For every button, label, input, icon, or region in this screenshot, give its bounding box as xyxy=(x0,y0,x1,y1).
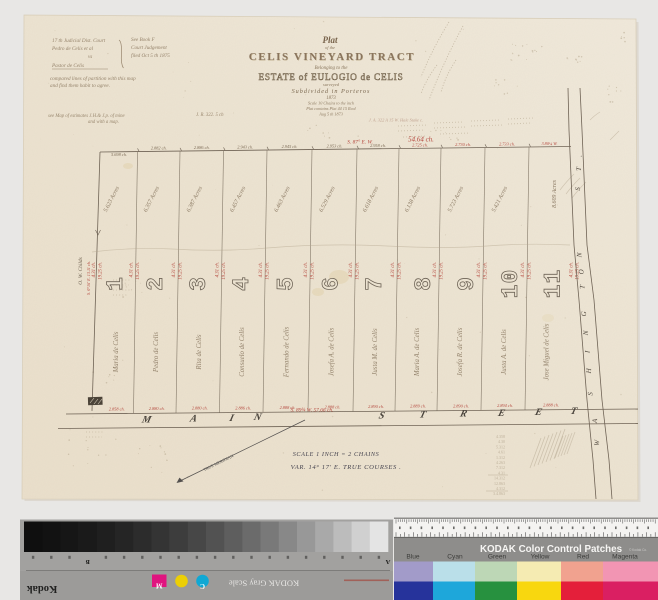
svg-text:4.31 ch.: 4.31 ch. xyxy=(172,262,177,277)
svg-text:J. R. 322. 5 ch: J. R. 322. 5 ch xyxy=(196,113,224,118)
svg-text:Cyan: Cyan xyxy=(447,554,463,561)
svg-text:19.25 ch.: 19.25 ch. xyxy=(222,262,227,280)
svg-text:VAR. 14° 17' E. TRUE COURSE: VAR. 14° 17' E. TRUE COURSES . xyxy=(291,464,402,471)
svg-text:J. A. 322 A 15 W. Hale Stake: J. A. 322 A 15 W. Hale Stake c. xyxy=(369,118,423,123)
svg-text:17 th Judicial Dist. Court: 17 th Judicial Dist. Court xyxy=(52,38,106,44)
svg-text:19.25 ch.: 19.25 ch. xyxy=(397,262,402,280)
svg-text:2: 2 xyxy=(143,276,169,291)
svg-text:Justa M. de Celis: Justa M. de Celis xyxy=(372,328,379,376)
svg-text:A: A xyxy=(385,558,390,565)
svg-text:Scale 10 Chains to the inch: Scale 10 Chains to the inch xyxy=(308,101,354,106)
svg-text:Blue: Blue xyxy=(406,554,420,561)
svg-text:Maria A. de Celis: Maria A. de Celis xyxy=(414,328,421,378)
svg-text:9: 9 xyxy=(454,276,480,291)
svg-text:S. 0°16' E. 13.11 ch.: S. 0°16' E. 13.11 ch. xyxy=(86,261,91,295)
svg-text:19.25 ch.: 19.25 ch. xyxy=(527,262,532,280)
svg-text:4.31 ch.: 4.31 ch. xyxy=(130,262,135,277)
svg-text:2.890 ch.: 2.890 ch. xyxy=(453,403,469,408)
svg-text:2.730 ch.: 2.730 ch. xyxy=(455,142,471,147)
svg-text:19.25 ch.: 19.25 ch. xyxy=(483,262,488,280)
svg-text:filed Oct 5 th 1875: filed Oct 5 th 1875 xyxy=(131,52,170,59)
svg-text:G: G xyxy=(580,311,588,316)
svg-text:54.64 ch.: 54.64 ch. xyxy=(408,136,434,144)
svg-text:and find them habit to agree.: and find them habit to agree. xyxy=(50,82,110,89)
svg-text:Belonging to the: Belonging to the xyxy=(314,66,348,71)
svg-text:N: N xyxy=(582,330,590,336)
svg-text:10: 10 xyxy=(498,269,524,299)
svg-text:2.733 ch.: 2.733 ch. xyxy=(499,141,515,146)
svg-text:19.25 ch.: 19.25 ch. xyxy=(439,262,444,280)
svg-text:4.31 ch.: 4.31 ch. xyxy=(304,262,309,277)
svg-text:2.880 ch.: 2.880 ch. xyxy=(149,406,165,411)
svg-text:© Kodak Co.: © Kodak Co. xyxy=(629,548,647,552)
svg-text:vs: vs xyxy=(88,54,92,60)
svg-text:19.25 ch.: 19.25 ch. xyxy=(310,262,315,280)
svg-text:compared lines of partition wi: compared lines of partition with this ma… xyxy=(50,75,136,82)
svg-text:2.953 ch.: 2.953 ch. xyxy=(327,144,343,149)
svg-text:Consuelo de Celis: Consuelo de Celis xyxy=(239,327,246,377)
svg-text:Rita de Celis: Rita de Celis xyxy=(196,334,203,370)
svg-text:N: N xyxy=(575,252,583,258)
svg-text:4.31 ch.: 4.31 ch. xyxy=(433,262,438,277)
svg-text:Green: Green xyxy=(488,554,507,561)
svg-text:of the: of the xyxy=(325,45,335,50)
svg-text:7: 7 xyxy=(362,276,388,291)
svg-text:19.25 ch.: 19.25 ch. xyxy=(136,262,141,280)
svg-text:2.943 ch.: 2.943 ch. xyxy=(237,145,253,150)
svg-text:4.31 ch.: 4.31 ch. xyxy=(349,262,354,277)
svg-text:Josefa R. de Celis: Josefa R. de Celis xyxy=(457,327,464,376)
svg-text:4.31 ch.: 4.31 ch. xyxy=(391,262,396,277)
svg-text:2.889 ch.: 2.889 ch. xyxy=(410,404,426,409)
svg-text:Maria de Celis: Maria de Celis xyxy=(113,331,120,373)
svg-text:1: 1 xyxy=(103,276,129,291)
svg-text:6: 6 xyxy=(319,276,345,291)
svg-text:Red: Red xyxy=(577,554,589,561)
svg-text:C: C xyxy=(200,582,205,590)
svg-text:Pedro de Celis et al: Pedro de Celis et al xyxy=(51,46,94,52)
svg-text:2.886 ch.: 2.886 ch. xyxy=(235,405,251,410)
svg-text:surveyed: surveyed xyxy=(323,82,340,87)
svg-text:and with a map.: and with a map. xyxy=(88,120,119,125)
svg-text:Fernando de Celis: Fernando de Celis xyxy=(284,326,291,378)
svg-text:2.886 ch.: 2.886 ch. xyxy=(194,145,210,150)
svg-text:3: 3 xyxy=(186,276,212,291)
svg-text:O: O xyxy=(577,269,585,274)
svg-text:Josefa A. de Celis: Josefa A. de Celis xyxy=(329,327,336,376)
svg-text:4.31 ch.: 4.31 ch. xyxy=(477,262,482,277)
svg-text:4.31 ch.: 4.31 ch. xyxy=(92,262,97,277)
svg-text:Plat: Plat xyxy=(323,35,338,45)
svg-text:19.25 ch.: 19.25 ch. xyxy=(178,262,183,280)
svg-text:Pastor de Celis: Pastor de Celis xyxy=(51,63,84,69)
svg-text:S. 87° E. W.: S. 87° E. W. xyxy=(347,139,373,146)
svg-text:5.698 ch.: 5.698 ch. xyxy=(111,152,127,157)
svg-text:3.4.863: 3.4.863 xyxy=(493,491,505,496)
svg-text:2.858 ch.: 2.858 ch. xyxy=(109,406,125,411)
svg-text:Pedro de Celis: Pedro de Celis xyxy=(153,332,160,373)
svg-text:4.31 ch.: 4.31 ch. xyxy=(570,262,575,277)
svg-text:4.31 ch.: 4.31 ch. xyxy=(521,262,526,277)
svg-text:Plat contains Plat 44 15 Real: Plat contains Plat 44 15 Real xyxy=(305,106,356,111)
svg-text:Magenta: Magenta xyxy=(612,554,638,561)
svg-text:2.890 ch.: 2.890 ch. xyxy=(368,404,384,409)
svg-text:See Book F: See Book F xyxy=(131,37,155,43)
svg-text:2.888 ch.: 2.888 ch. xyxy=(543,403,559,408)
svg-text:4: 4 xyxy=(229,276,255,291)
svg-text:2.882 ch.: 2.882 ch. xyxy=(151,146,167,151)
svg-text:5: 5 xyxy=(274,276,300,291)
svg-text:KODAK Gray Scale: KODAK Gray Scale xyxy=(229,579,300,589)
svg-text:8.609 Acres: 8.609 Acres xyxy=(552,179,558,208)
svg-text:O. W. Childs: O. W. Childs xyxy=(78,257,84,284)
svg-text:SCALE 1 INCH = 2 CHAINS: SCALE 1 INCH = 2 CHAINS xyxy=(293,451,380,458)
svg-text:Jose Miguel de Celis: Jose Miguel de Celis xyxy=(544,323,551,380)
svg-text:19.25 ch.: 19.25 ch. xyxy=(355,262,360,280)
svg-text:2.945 ch.: 2.945 ch. xyxy=(282,144,298,149)
svg-text:see Map of estimates J.H.& J.p: see Map of estimates J.H.& J.p. of mine xyxy=(48,114,125,119)
svg-text:2.880 ch.: 2.880 ch. xyxy=(192,406,208,411)
svg-text:4.31 ch.: 4.31 ch. xyxy=(216,262,221,277)
svg-text:M: M xyxy=(156,582,163,590)
svg-text:3.80¼ W.: 3.80¼ W. xyxy=(541,141,557,146)
svg-text:Subdivided in Porteros: Subdivided in Porteros xyxy=(292,88,371,95)
svg-text:Aug 5 th 1873: Aug 5 th 1873 xyxy=(318,112,343,117)
svg-text:S. 89¾ W. 57.66 ch.: S. 89¾ W. 57.66 ch. xyxy=(291,408,334,414)
svg-text:Court Judgement: Court Judgement xyxy=(131,45,167,51)
svg-text:Yellow: Yellow xyxy=(531,554,550,561)
svg-text:Kodak: Kodak xyxy=(27,583,58,594)
svg-text:11: 11 xyxy=(541,269,567,299)
svg-text:19.25 ch.: 19.25 ch. xyxy=(265,262,270,280)
svg-text:Justa A. de Celis: Justa A. de Celis xyxy=(501,329,508,375)
svg-text:4.31 ch.: 4.31 ch. xyxy=(259,262,264,277)
svg-text:CELIS VINEYARD TRACT: CELIS VINEYARD TRACT xyxy=(249,51,415,63)
svg-text:B: B xyxy=(86,558,90,564)
svg-text:ESTATE of EULOGIO de CELIS: ESTATE of EULOGIO de CELIS xyxy=(258,72,403,82)
